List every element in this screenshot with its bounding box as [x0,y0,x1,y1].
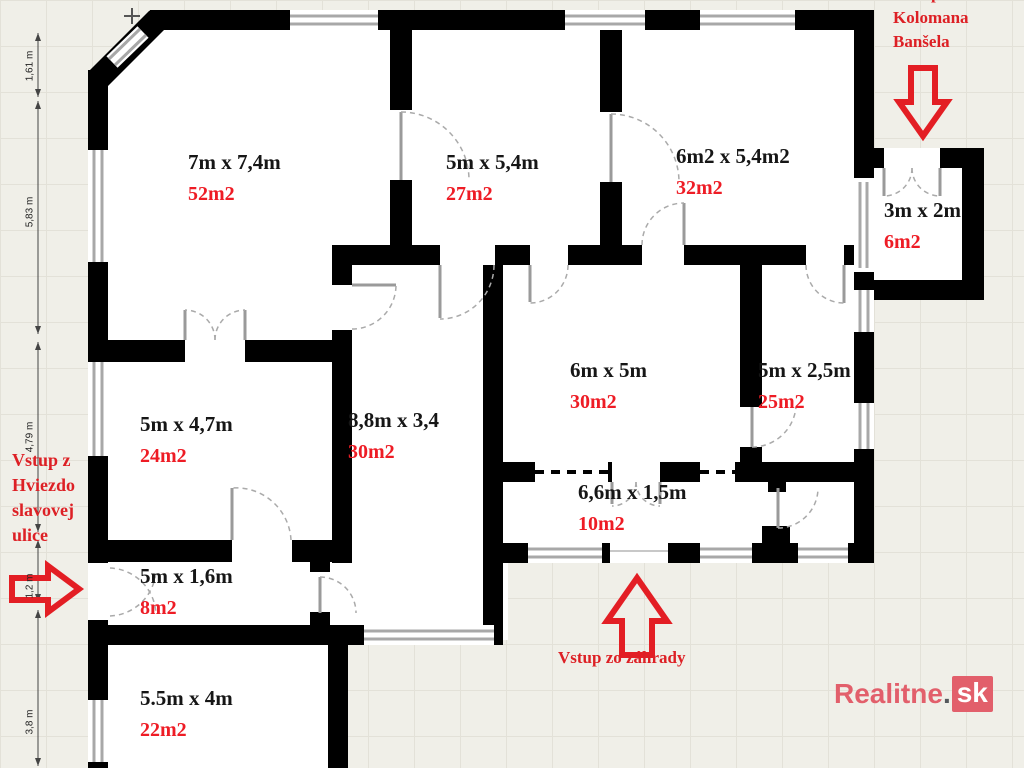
plus-marker [124,8,140,24]
floorplan-drawing [0,0,1024,768]
room-label: 7m x 7,4m 52m2 [188,152,281,204]
watermark-dot: . [943,677,951,711]
dimension-label: 1,2 m [25,573,36,598]
room-size-label: 8,8m x 3,4 [348,410,439,431]
room-label: 5m x 4,7m 24m2 [140,414,233,466]
room-label: 6m x 5m 30m2 [570,360,647,412]
floorplan-canvas: 7m x 7,4m 52m2 5m x 5,4m 27m2 6m2 x 5,4m… [0,0,1024,768]
annotation-line: Vstup z [12,448,75,473]
watermark-tld: sk [952,676,993,712]
dimension-label: 1,61 m [25,51,36,82]
room-size-label: 6m2 x 5,4m2 [676,146,790,167]
room-label: 5m x 2,5m 25m2 [758,360,851,412]
room-label: 3m x 2m 6m2 [884,200,961,252]
watermark-name: Realitne [834,677,943,711]
room-size-label: 6m x 5m [570,360,647,381]
room-size-label: 5m x 5,4m [446,152,539,173]
arrow-right-icon [12,566,79,612]
room-area-label: 22m2 [140,720,233,740]
room-size-label: 5m x 2,5m [758,360,851,381]
room-area-label: 24m2 [140,446,233,466]
top-entrance-annotation: p Kolomana Banšela [893,0,969,54]
arrow-down-icon [899,68,947,136]
annotation-line: ulice [12,523,75,548]
arrow-up-icon [607,578,667,655]
watermark-logo: Realitne.sk [834,676,993,712]
room-area-label: 25m2 [758,392,851,412]
room-label: 6,6m x 1,5m 10m2 [578,482,687,534]
room-area-label: 27m2 [446,184,539,204]
annotation-line: Kolomana [893,6,969,30]
room-label: 5.5m x 4m 22m2 [140,688,233,740]
dimension-label: 3,8 m [25,709,36,734]
room-size-label: 3m x 2m [884,200,961,221]
room-label: 8,8m x 3,4 30m2 [348,410,439,462]
room-area-label: 30m2 [570,392,647,412]
room-size-label: 6,6m x 1,5m [578,482,687,503]
annotation-line: Hviezdo [12,473,75,498]
garden-entrance-annotation: Vstup zo záhrady [558,648,686,668]
room-label: 6m2 x 5,4m2 32m2 [676,146,790,198]
street-entrance-annotation: Vstup z Hviezdo slavovej ulice [12,448,75,548]
room-size-label: 5m x 4,7m [140,414,233,435]
room-area-label: 52m2 [188,184,281,204]
room-size-label: 5m x 1,6m [140,566,233,587]
dimension-label: 4,79 m [25,422,36,453]
room-area-label: 30m2 [348,442,439,462]
annotation-line: Banšela [893,30,969,54]
dimension-label: 5,83 m [25,197,36,228]
room-area-label: 32m2 [676,178,790,198]
room-area-label: 8m2 [140,598,233,618]
room-label: 5m x 1,6m 8m2 [140,566,233,618]
room-size-label: 5.5m x 4m [140,688,233,709]
room-area-label: 6m2 [884,232,961,252]
room-label: 5m x 5,4m 27m2 [446,152,539,204]
room-area-label: 10m2 [578,514,687,534]
room-size-label: 7m x 7,4m [188,152,281,173]
annotation-line: slavovej [12,498,75,523]
